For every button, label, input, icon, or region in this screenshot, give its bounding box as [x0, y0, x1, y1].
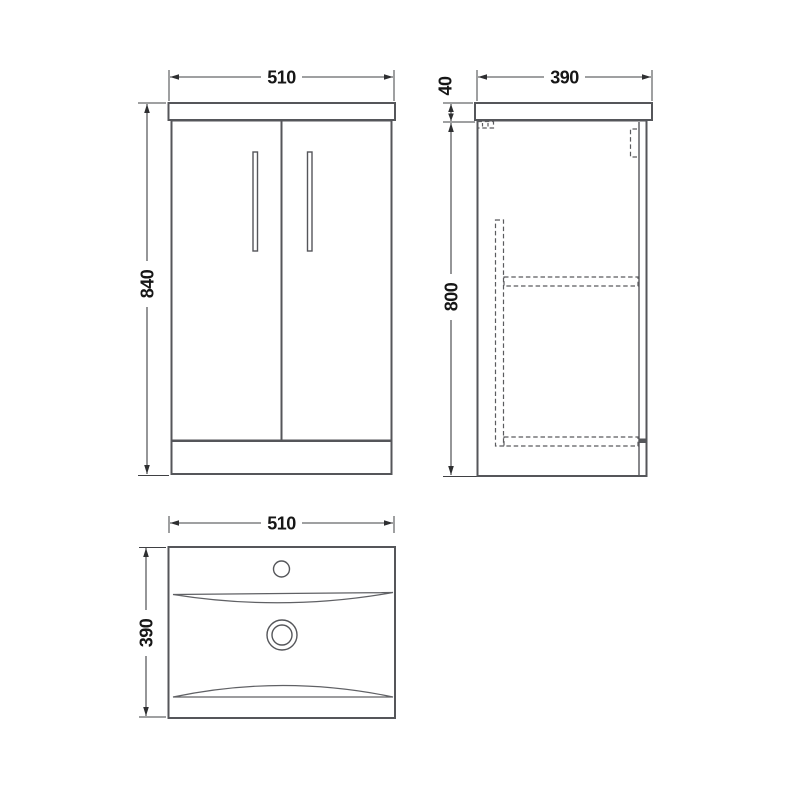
basin-front-bowl-curve: [173, 686, 393, 698]
plan-width-label: 510: [267, 514, 296, 534]
hinge-plate-outline: [478, 122, 494, 129]
arrowhead-down: [144, 465, 150, 474]
arrowhead-down: [448, 114, 454, 122]
vanity-unit-dimension-drawing: 510 840: [0, 0, 800, 800]
tap-hole: [274, 561, 290, 577]
plan-depth-label: 390: [136, 618, 156, 647]
arrowhead-right: [642, 74, 651, 80]
front-width-label: 510: [267, 68, 296, 88]
arrowhead-down: [143, 707, 149, 716]
arrowhead-right: [384, 520, 393, 526]
arrowhead-up: [144, 104, 150, 113]
front-right-door-handle: [308, 152, 313, 251]
technical-drawing-canvas: 510 840: [0, 0, 800, 800]
plan-width-dimension: 510: [169, 514, 394, 534]
front-height-dimension: 840: [137, 103, 169, 476]
plan-depth-dimension: 390: [136, 548, 166, 718]
side-shelf-edge: [639, 439, 647, 444]
side-hidden-upright: [496, 220, 504, 446]
side-hidden-middle-shelf: [504, 277, 638, 286]
arrowhead-left: [170, 74, 179, 80]
basin-rear-ledge-curve: [173, 593, 393, 603]
arrowhead-right: [384, 74, 393, 80]
side-worktop-thickness-dimension: 40: [435, 76, 475, 122]
side-cabinet-height-dimension: 800: [441, 123, 477, 477]
side-worktop-thickness-label: 40: [435, 76, 455, 96]
arrowhead-down: [448, 466, 454, 475]
arrowhead-up: [143, 548, 149, 557]
front-width-dimension: 510: [169, 68, 394, 102]
front-plinth: [172, 441, 392, 474]
waste-hole-inner: [272, 625, 292, 645]
front-left-door-handle: [253, 152, 258, 251]
side-hinge-arm-hidden: [631, 129, 640, 157]
arrowhead-up: [448, 123, 454, 132]
side-elevation-view: 390 40 800: [435, 68, 652, 477]
side-cabinet-body: [478, 121, 647, 477]
arrowhead-left: [478, 74, 487, 80]
arrowhead-up: [448, 104, 454, 112]
side-cabinet-height-label: 800: [441, 282, 461, 311]
side-hinge-plate-hidden: [478, 122, 494, 129]
front-elevation-view: 510 840: [137, 68, 395, 476]
side-depth-label: 390: [550, 68, 579, 88]
front-worktop: [169, 103, 396, 120]
side-hidden-bottom-shelf: [504, 437, 638, 446]
side-depth-dimension: 390: [477, 68, 652, 102]
side-worktop: [475, 103, 652, 120]
basin-plan-view: 510 390: [136, 514, 395, 719]
arrowhead-left: [170, 520, 179, 526]
waste-hole: [267, 620, 297, 650]
front-height-label: 840: [137, 269, 157, 298]
